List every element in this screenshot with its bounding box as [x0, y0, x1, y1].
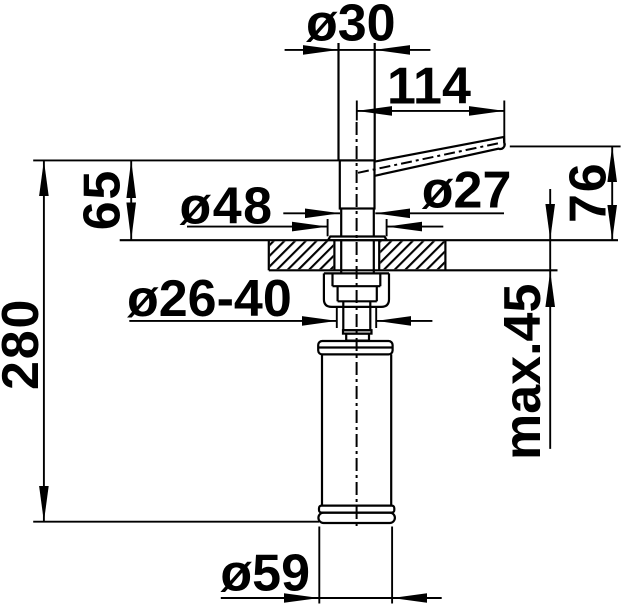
svg-text:280: 280: [0, 298, 50, 390]
svg-text:ø30: ø30: [306, 0, 396, 53]
svg-text:ø59: ø59: [220, 544, 310, 602]
svg-text:ø48: ø48: [180, 177, 274, 235]
svg-text:max.45: max.45: [494, 284, 552, 460]
svg-text:76: 76: [560, 162, 618, 223]
svg-text:ø26-40: ø26-40: [127, 270, 292, 328]
svg-text:114: 114: [387, 58, 471, 116]
svg-text:ø27: ø27: [422, 161, 512, 219]
svg-text:65: 65: [74, 169, 132, 230]
